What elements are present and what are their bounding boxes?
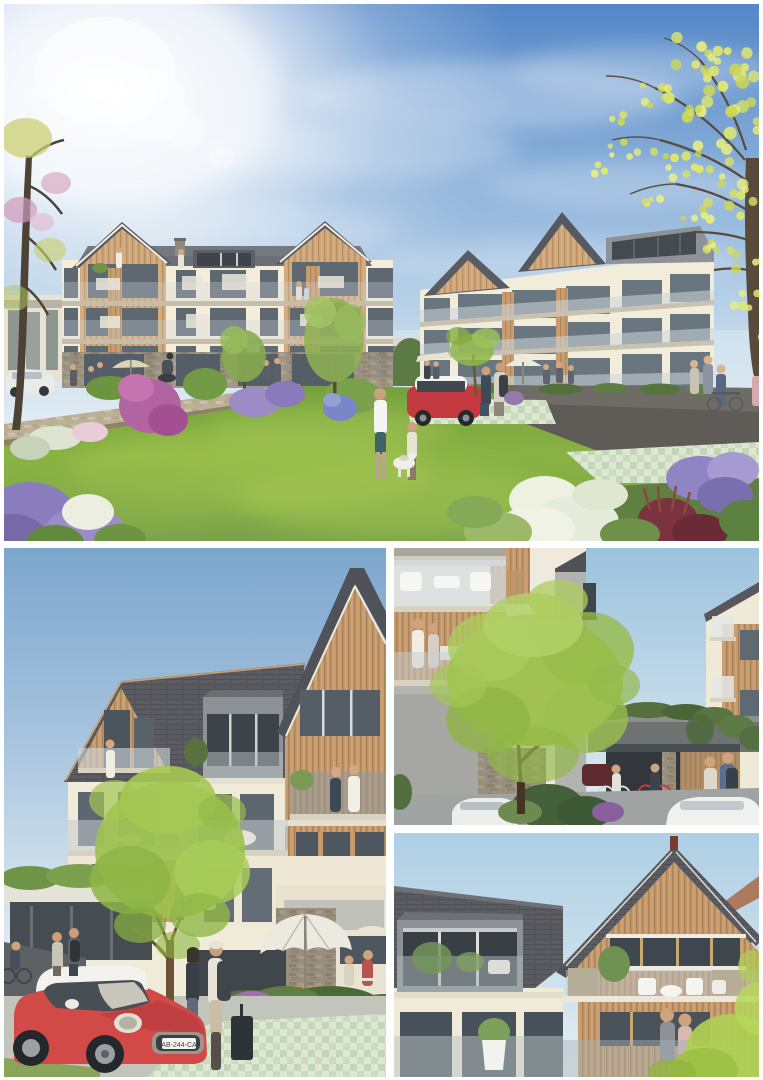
svg-text:AB-244-CA: AB-244-CA [161,1042,197,1049]
